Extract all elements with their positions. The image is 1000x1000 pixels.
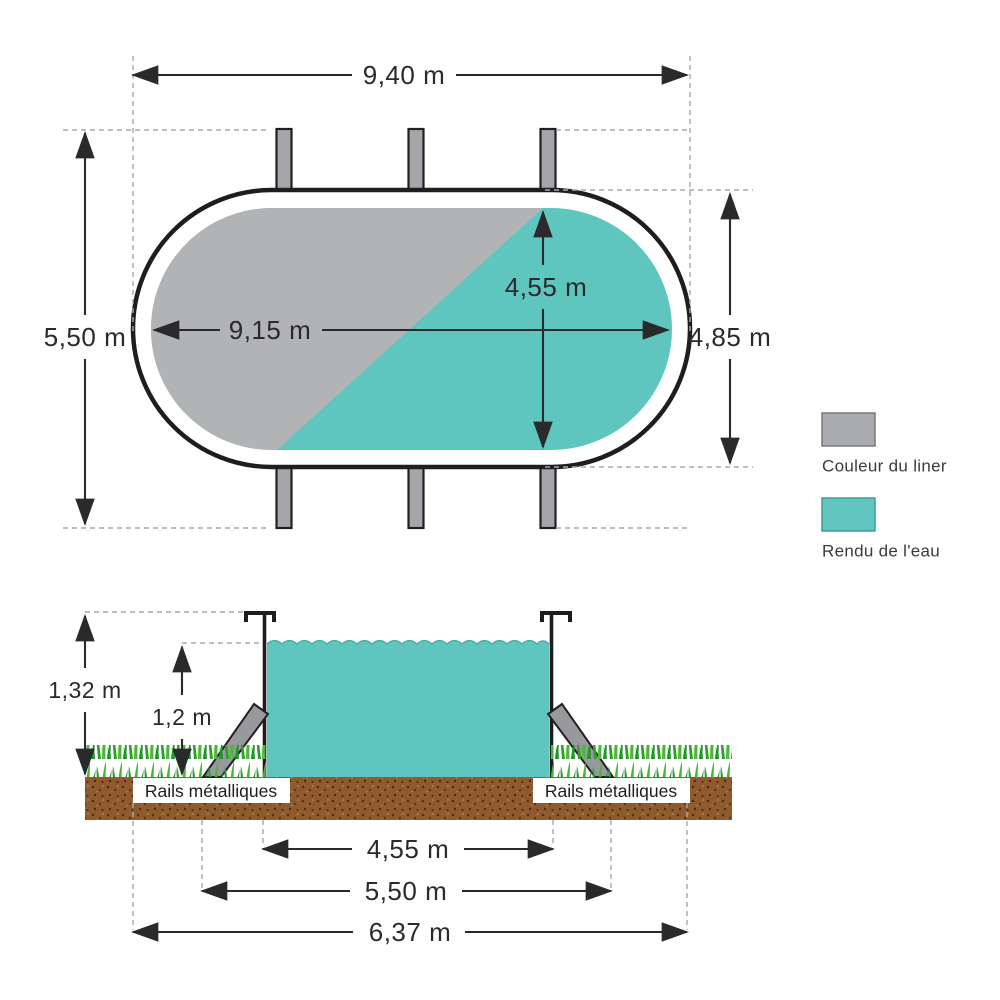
dimension-outer-height-label: 4,85 m bbox=[689, 322, 772, 352]
legend-swatch-water bbox=[822, 498, 875, 531]
grass-right bbox=[551, 745, 732, 777]
rails-label-right-box: Rails métalliques bbox=[533, 778, 690, 803]
dimension-rails-width: 5,50 m bbox=[202, 876, 611, 906]
support-post-bottom-center bbox=[409, 465, 424, 528]
dimension-total-height-label: 5,50 m bbox=[44, 322, 127, 352]
top-view: 9,40 m 5,50 m 9,15 m 4,55 m 4,85 m bbox=[44, 56, 772, 528]
dimension-total-width-label: 9,40 m bbox=[363, 60, 446, 90]
rails-label-left-box: Rails métalliques bbox=[133, 778, 290, 803]
dimension-total-height: 5,50 m bbox=[44, 133, 127, 524]
dimension-inner-length-label: 9,15 m bbox=[229, 315, 312, 345]
legend-liner-label: Couleur du liner bbox=[822, 457, 947, 476]
support-post-top-center bbox=[409, 129, 424, 192]
pool-dimension-diagram: 9,40 m 5,50 m 9,15 m 4,55 m 4,85 m bbox=[0, 0, 1000, 1000]
dimension-ground-width: 6,37 m bbox=[133, 917, 687, 947]
rails-label-right: Rails métalliques bbox=[545, 781, 678, 801]
support-post-bottom-right bbox=[541, 465, 556, 528]
dimension-water-height-label: 1,2 m bbox=[152, 704, 212, 730]
support-post-top-left bbox=[277, 129, 292, 192]
top-rail-cap-right bbox=[542, 613, 570, 622]
legend-water-label: Rendu de l'eau bbox=[822, 542, 940, 561]
top-rail-cap-left bbox=[246, 613, 274, 622]
legend-swatch-liner bbox=[822, 413, 875, 446]
support-post-bottom-left bbox=[277, 465, 292, 528]
dimension-outer-height: 4,85 m bbox=[689, 194, 772, 463]
side-view: Rails métalliques Rails métalliques 1,32… bbox=[48, 612, 732, 947]
dimension-ground-width-label: 6,37 m bbox=[369, 917, 452, 947]
rails-label-left: Rails métalliques bbox=[145, 781, 278, 801]
support-post-top-right bbox=[541, 129, 556, 192]
diagram-canvas: 9,40 m 5,50 m 9,15 m 4,55 m 4,85 m bbox=[0, 0, 1000, 1000]
dimension-total-width: 9,40 m bbox=[133, 60, 687, 90]
side-water-body bbox=[267, 641, 549, 778]
grass-left bbox=[85, 745, 266, 777]
dimension-base-width-label: 4,55 m bbox=[367, 834, 450, 864]
dimension-rails-width-label: 5,50 m bbox=[365, 876, 448, 906]
legend: Couleur du liner Rendu de l'eau bbox=[822, 413, 947, 561]
dimension-base-width: 4,55 m bbox=[263, 834, 553, 864]
dimension-total-height-side-label: 1,32 m bbox=[48, 677, 121, 703]
dimension-inner-width-label: 4,55 m bbox=[505, 272, 588, 302]
